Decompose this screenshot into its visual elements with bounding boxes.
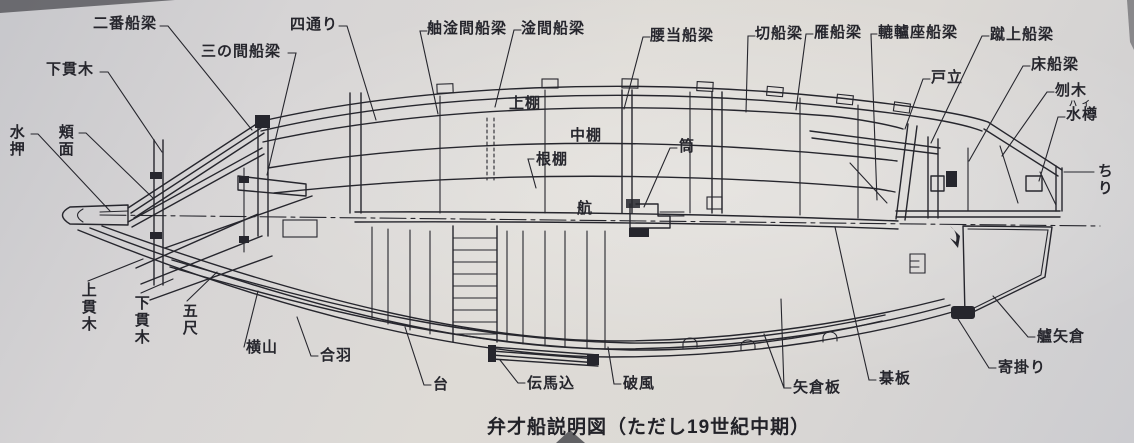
label-keage-funabari: 蹴上船梁 bbox=[990, 27, 1054, 43]
label-tenmagomi: 伝馬込 bbox=[527, 376, 575, 392]
label-nedana: 根棚 bbox=[536, 152, 568, 168]
label-dai: 台 bbox=[433, 377, 449, 393]
label-kappa: 合羽 bbox=[320, 348, 352, 364]
label-hanegi: 刎木 bbox=[1055, 83, 1087, 99]
label-kawara: 航 bbox=[577, 201, 593, 217]
label-miyoshi: 水押 bbox=[8, 124, 24, 158]
label-hozura: 頬面 bbox=[57, 124, 73, 158]
label-yagura-ita: 矢倉板 bbox=[793, 380, 841, 396]
label-hafu: 破風 bbox=[623, 376, 655, 392]
label-todate: 戸立 bbox=[931, 70, 963, 86]
label-niban-funabari: 二番船梁 bbox=[93, 16, 157, 32]
label-goshaku: 五尺 bbox=[181, 303, 197, 337]
label-yodori: 四通り bbox=[290, 17, 338, 33]
ship-diagram-photo: 二番船梁 下貫木 三の間船梁 四通り 舳淦間船梁 淦間船梁 腰当船梁 切船梁 雁… bbox=[0, 0, 1134, 443]
label-sannoma-funabari: 三の間船梁 bbox=[201, 44, 281, 60]
label-koshiate-funabari: 腰当船梁 bbox=[650, 28, 714, 44]
label-chiri: ちり bbox=[1096, 163, 1112, 197]
hull-bottom bbox=[78, 226, 956, 357]
label-tomo-yagura: 艫矢倉 bbox=[1037, 329, 1085, 345]
label-rokuroza-funabari: 轆轤座船梁 bbox=[878, 25, 958, 41]
caption: 弁才船説明図（ただし19世紀中期） bbox=[487, 412, 810, 439]
label-shimo-nukigi: 下貫木 bbox=[133, 295, 149, 346]
label-yokoyama: 横山 bbox=[246, 340, 278, 356]
label-mizutaru: 水樽 bbox=[1066, 107, 1098, 123]
stern-structure bbox=[810, 122, 1062, 319]
label-kami-nukigi: 上貫木 bbox=[80, 282, 96, 333]
label-yorikakari: 寄掛り bbox=[998, 360, 1046, 376]
label-toko-funabari: 床船梁 bbox=[1031, 57, 1079, 73]
label-tsutsu: 筒 bbox=[679, 139, 695, 155]
label-uwadana: 上棚 bbox=[509, 96, 541, 112]
label-nakadana: 中棚 bbox=[570, 128, 602, 144]
label-shimo-nukigi-top: 下貫木 bbox=[46, 62, 94, 78]
frames-upper bbox=[350, 90, 858, 218]
label-goban-ita: 棊板 bbox=[879, 371, 911, 387]
label-he-akama-funabari: 舳淦間船梁 bbox=[427, 21, 507, 37]
frames-lower bbox=[372, 226, 605, 366]
label-kiri-funabari: 切船梁 bbox=[755, 26, 803, 42]
label-gan-funabari: 雁船梁 bbox=[814, 25, 862, 41]
label-akama-funabari: 淦間船梁 bbox=[521, 21, 585, 37]
